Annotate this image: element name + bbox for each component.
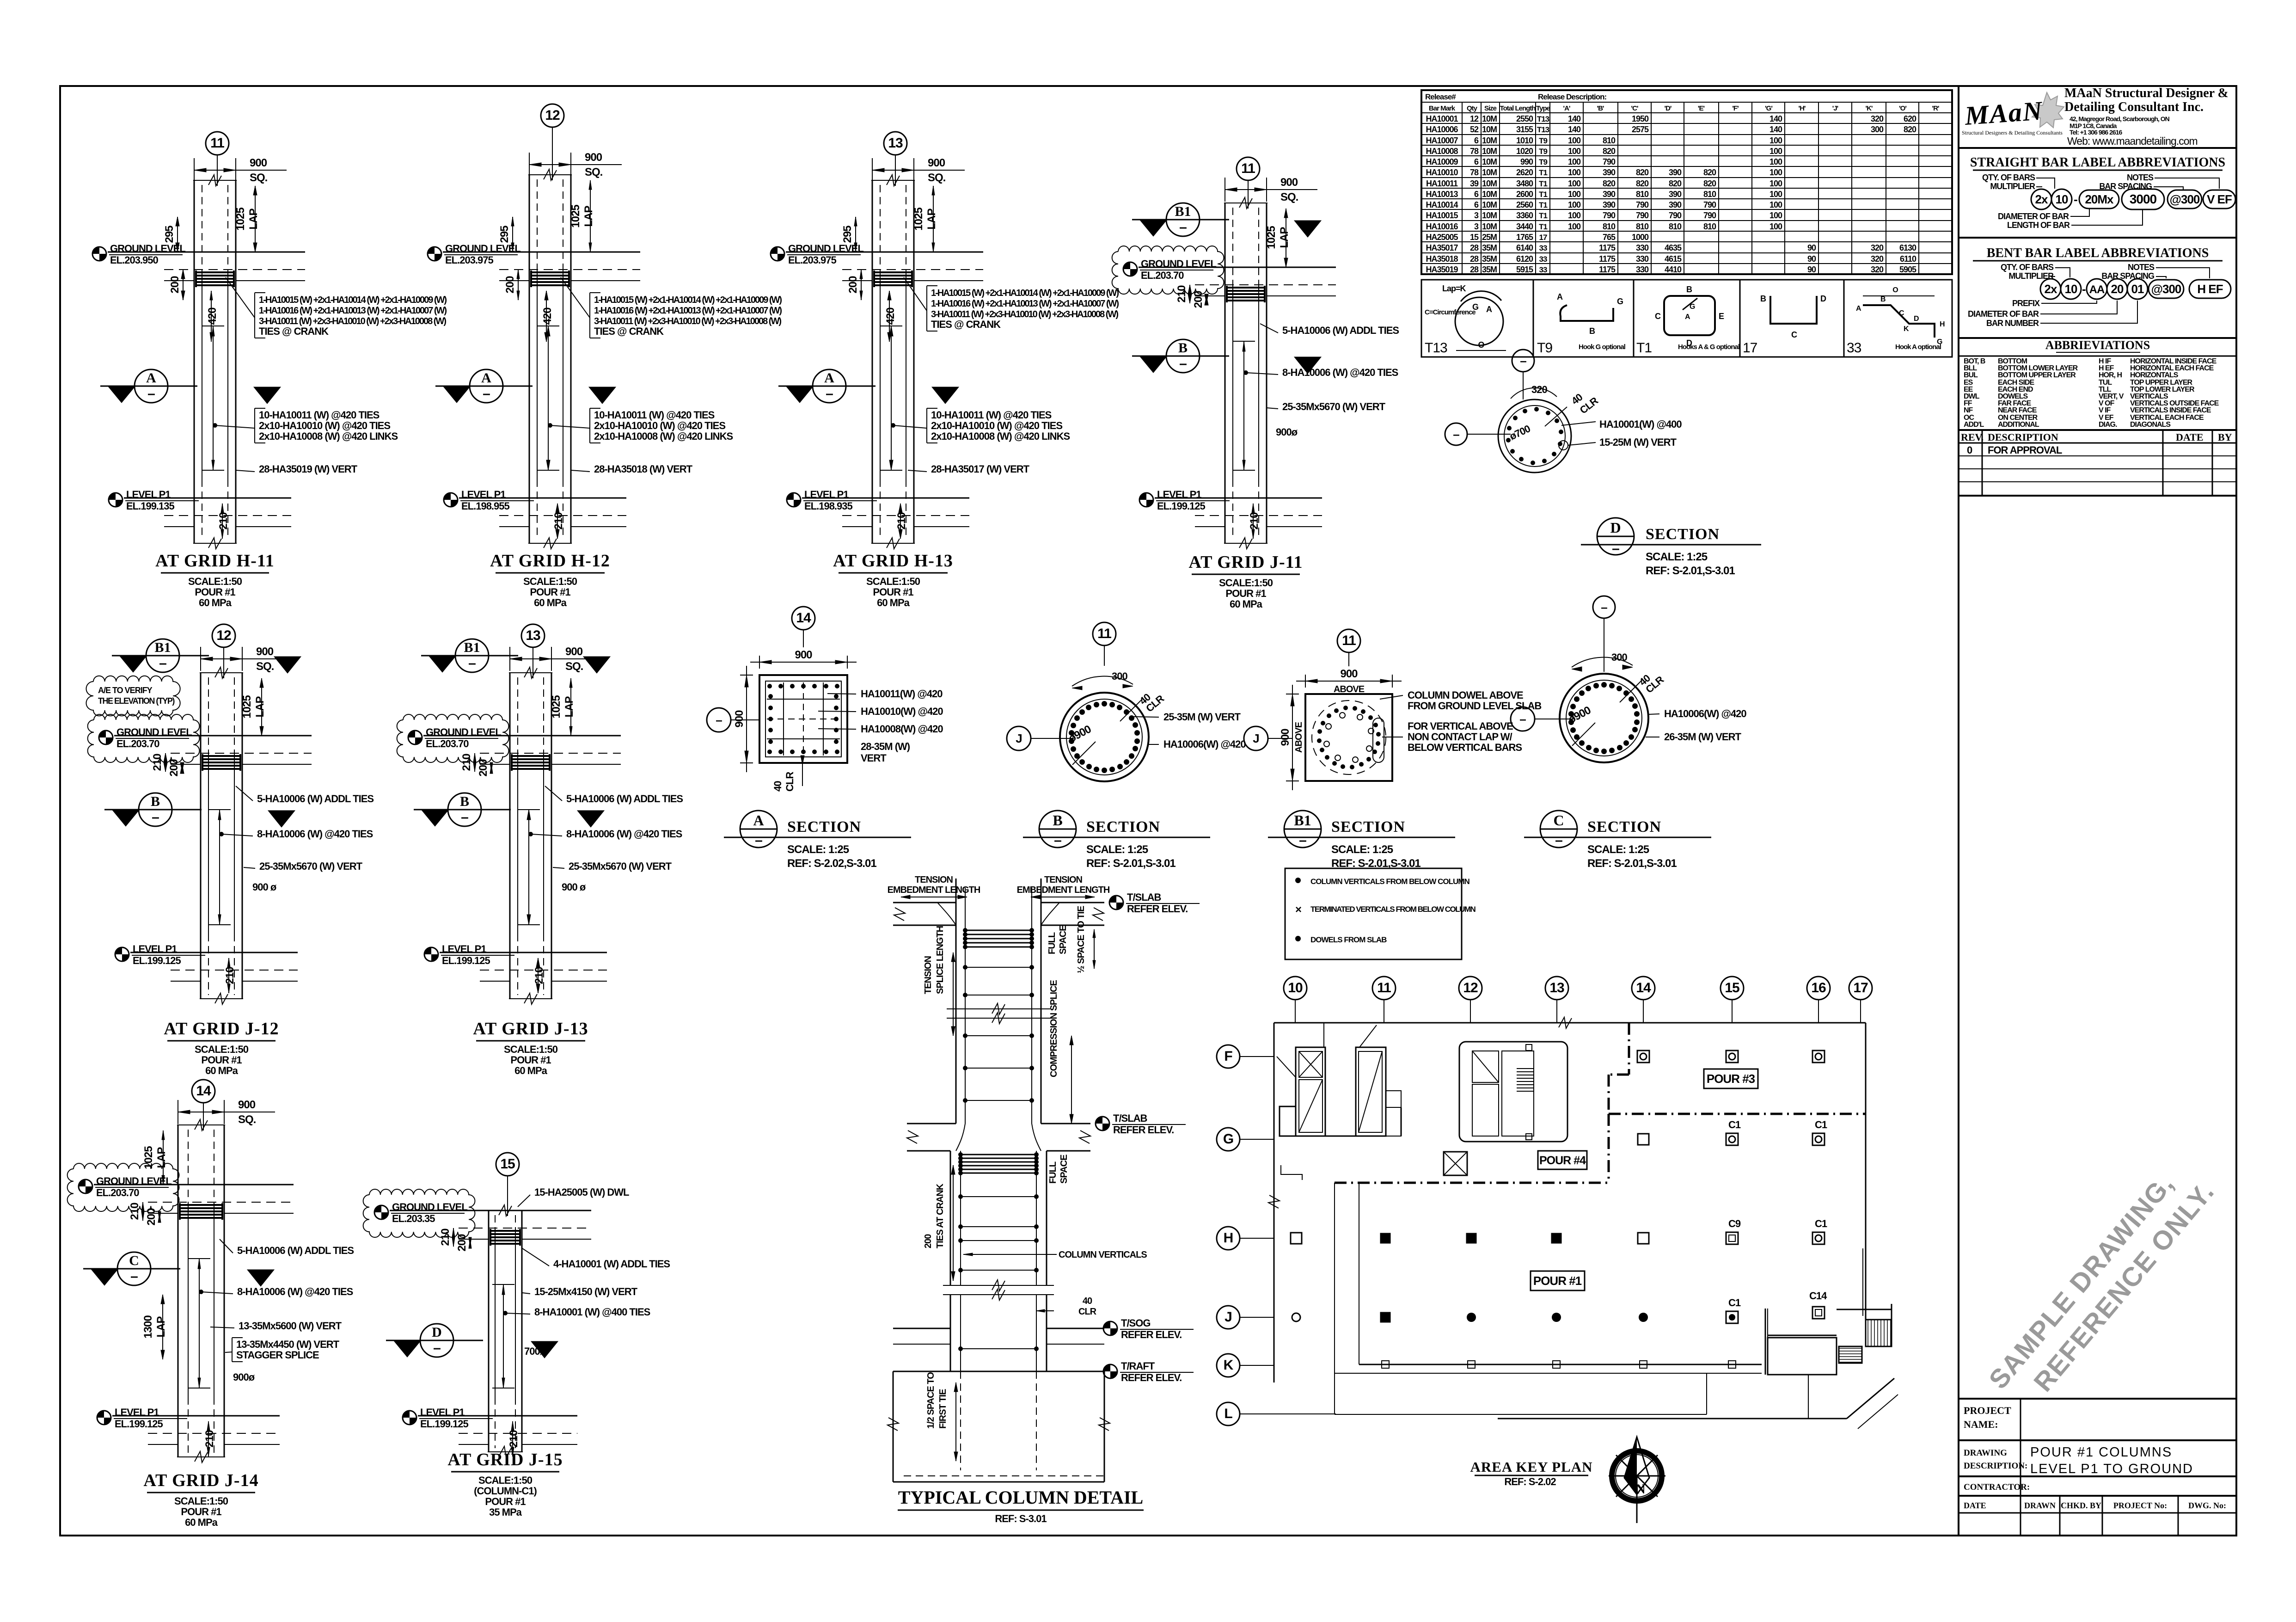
svg-text:@300: @300	[2151, 282, 2181, 296]
svg-text:L: L	[1224, 1406, 1232, 1421]
svg-text:HA10010(W) @420: HA10010(W) @420	[861, 706, 943, 717]
svg-text:DIAGONALS: DIAGONALS	[2130, 421, 2171, 429]
svg-text:J: J	[1225, 1309, 1232, 1325]
svg-text:100: 100	[1568, 222, 1581, 231]
svg-text:REFER ELEV.: REFER ELEV.	[1127, 903, 1188, 915]
svg-text:1025: 1025	[1265, 226, 1278, 249]
svg-text:100: 100	[1568, 136, 1581, 145]
svg-text:790: 790	[1703, 211, 1716, 220]
svg-text:900: 900	[238, 1099, 256, 1111]
svg-text:–: –	[147, 386, 155, 401]
svg-text:REFER ELEV.: REFER ELEV.	[1121, 1329, 1182, 1340]
svg-text:420: 420	[884, 307, 897, 325]
svg-text:HA10015: HA10015	[1426, 211, 1458, 220]
svg-text:3360: 3360	[1516, 211, 1533, 220]
svg-text:FULL: FULL	[1048, 1161, 1058, 1184]
svg-text:SECTION: SECTION	[1086, 818, 1160, 836]
svg-text:BENT BAR LABEL ABBREVIATION: BENT BAR LABEL ABBREVIATIONS	[1987, 246, 2209, 260]
svg-text:820: 820	[1636, 179, 1649, 188]
svg-text:210: 210	[129, 1203, 141, 1220]
svg-text:(COLUMN-C1): (COLUMN-C1)	[474, 1485, 537, 1497]
svg-text:28-HA35017 (W) VERT: 28-HA35017 (W) VERT	[931, 463, 1030, 475]
svg-text:15-25Mx4150 (W) VERT: 15-25Mx4150 (W) VERT	[534, 1286, 638, 1297]
svg-text:C1: C1	[1815, 1119, 1827, 1130]
svg-text:700ø: 700ø	[524, 1346, 546, 1357]
svg-text:CLR: CLR	[784, 772, 796, 792]
svg-text:200: 200	[477, 759, 490, 777]
svg-text:NF: NF	[1964, 406, 1973, 414]
svg-text:10-HA10011 (W) @420 TIES: 10-HA10011 (W) @420 TIES	[594, 409, 715, 421]
svg-text:100: 100	[1769, 147, 1782, 156]
svg-text:SQ.: SQ.	[565, 660, 583, 673]
svg-text:–: –	[1519, 712, 1526, 726]
svg-text:320: 320	[1871, 265, 1884, 274]
svg-text:100: 100	[1769, 136, 1782, 145]
svg-text:5-HA10006 (W) ADDL TIES: 5-HA10006 (W) ADDL TIES	[257, 793, 373, 805]
svg-text:'G': 'G'	[1765, 104, 1772, 112]
svg-text:28-HA35018 (W) VERT: 28-HA35018 (W) VERT	[594, 463, 693, 475]
svg-text:0: 0	[1967, 444, 1972, 456]
svg-text:10M: 10M	[1482, 125, 1497, 134]
svg-text:25-35M (W) VERT: 25-35M (W) VERT	[1163, 711, 1241, 723]
svg-text:B1: B1	[1294, 812, 1311, 829]
svg-text:390: 390	[1669, 168, 1682, 177]
svg-text:33: 33	[1539, 244, 1547, 252]
svg-text:1/2 SPACE TO: 1/2 SPACE TO	[926, 1372, 936, 1429]
svg-text:POUR #1: POUR #1	[485, 1496, 526, 1507]
svg-text:NAME:: NAME:	[1964, 1419, 1998, 1430]
svg-text:C1: C1	[1815, 1218, 1827, 1229]
svg-text:SQ.: SQ.	[1280, 191, 1298, 203]
svg-text:3-HA10011 (W) +2x3-HA10010 (: 3-HA10011 (W) +2x3-HA10010 (W) +2x3-HA10…	[594, 316, 781, 326]
svg-text:2575: 2575	[1632, 125, 1649, 134]
svg-text:TENSION: TENSION	[915, 875, 953, 885]
svg-text:AT GRID H-13: AT GRID H-13	[833, 551, 953, 571]
svg-text:10M: 10M	[1482, 114, 1497, 123]
svg-text:28-HA35019 (W) VERT: 28-HA35019 (W) VERT	[259, 463, 358, 475]
svg-text:HORIZONTALS: HORIZONTALS	[2130, 371, 2179, 379]
svg-text:'B': 'B'	[1597, 104, 1604, 112]
svg-text:820: 820	[1703, 168, 1716, 177]
svg-text:990: 990	[1520, 157, 1533, 166]
svg-text:A: A	[1557, 292, 1563, 301]
svg-text:12: 12	[1470, 114, 1479, 123]
svg-text:210: 210	[460, 754, 473, 771]
svg-text:900: 900	[1340, 668, 1358, 680]
svg-text:SCALE:1:50: SCALE:1:50	[174, 1495, 228, 1507]
svg-text:DATE: DATE	[2176, 431, 2204, 443]
svg-text:HA10008: HA10008	[1426, 147, 1458, 156]
svg-text:1950: 1950	[1632, 114, 1649, 123]
svg-text:BAR SPACING: BAR SPACING	[2101, 271, 2154, 281]
svg-text:1175: 1175	[1599, 265, 1616, 274]
svg-text:REF: S-3.01: REF: S-3.01	[995, 1513, 1047, 1524]
svg-text:3-HA10011 (W) +2x3-HA10010 (: 3-HA10011 (W) +2x3-HA10010 (W) +2x3-HA10…	[259, 316, 446, 326]
svg-text:–: –	[755, 833, 762, 848]
svg-text:D: D	[432, 1325, 442, 1340]
svg-text:–: –	[433, 1340, 441, 1356]
svg-text:2x10-HA10010 (W) @420 TIES: 2x10-HA10010 (W) @420 TIES	[931, 420, 1062, 431]
svg-text:SECTION: SECTION	[787, 818, 861, 836]
svg-text:REV.: REV.	[1961, 431, 1984, 443]
svg-text:100: 100	[1769, 157, 1782, 166]
svg-text:6110: 6110	[1900, 254, 1916, 264]
svg-text:2x10-HA10008 (W) @420 LINKS: 2x10-HA10008 (W) @420 LINKS	[931, 430, 1070, 442]
svg-text:QTY. OF BARS: QTY. OF BARS	[1982, 173, 2035, 182]
svg-text:3000: 3000	[2130, 192, 2157, 206]
svg-text:20: 20	[2111, 282, 2124, 296]
svg-text:C1: C1	[1728, 1297, 1741, 1309]
svg-text:B: B	[1178, 340, 1188, 356]
svg-text:ABBRIEVIATIONS: ABBRIEVIATIONS	[2045, 338, 2150, 352]
svg-text:NOTES: NOTES	[2127, 173, 2154, 182]
svg-text:HA10011(W) @420: HA10011(W) @420	[861, 688, 943, 700]
svg-text:2x10-HA10010 (W) @420 TIES: 2x10-HA10010 (W) @420 TIES	[594, 420, 725, 431]
svg-text:POUR #1: POUR #1	[873, 586, 913, 598]
svg-text:AT GRID H-12: AT GRID H-12	[490, 551, 610, 571]
svg-text:26-35M (W) VERT: 26-35M (W) VERT	[1664, 731, 1741, 743]
svg-text:1000: 1000	[1632, 233, 1649, 242]
svg-text:25M: 25M	[1482, 233, 1497, 242]
svg-text:HA10011: HA10011	[1426, 179, 1458, 188]
svg-text:T13: T13	[1425, 340, 1447, 356]
svg-text:POUR #1: POUR #1	[1225, 588, 1266, 599]
svg-text:Hook A optional: Hook A optional	[1895, 343, 1941, 351]
svg-text:12: 12	[1463, 980, 1478, 995]
svg-text:V EF: V EF	[2207, 192, 2232, 206]
svg-text:PROJECT: PROJECT	[1964, 1405, 2011, 1416]
svg-text:E: E	[1719, 312, 1724, 321]
svg-text:420: 420	[541, 307, 554, 325]
svg-text:A: A	[1856, 305, 1861, 313]
svg-text:5-HA10006 (W) ADDL TIES: 5-HA10006 (W) ADDL TIES	[566, 793, 683, 805]
svg-text:28: 28	[1470, 254, 1479, 264]
svg-text:FULL: FULL	[1047, 932, 1057, 954]
svg-text:MAaN Structural Designer &: MAaN Structural Designer &	[2064, 86, 2229, 100]
svg-text:2x: 2x	[2035, 192, 2048, 206]
svg-text:1765: 1765	[1516, 233, 1533, 242]
svg-text:10M: 10M	[1482, 168, 1497, 177]
svg-text:O: O	[1892, 286, 1898, 294]
svg-text:C: C	[1655, 312, 1661, 321]
svg-text:LAP: LAP	[925, 209, 938, 230]
svg-text:T9: T9	[1537, 340, 1552, 356]
svg-text:J: J	[1253, 731, 1259, 745]
svg-text:2550: 2550	[1516, 114, 1533, 123]
svg-text:B1: B1	[1175, 204, 1191, 219]
svg-text:35M: 35M	[1482, 243, 1497, 252]
svg-text:3: 3	[1474, 211, 1479, 220]
svg-text:LAP: LAP	[155, 1147, 168, 1168]
svg-text:HA10010: HA10010	[1426, 168, 1458, 177]
svg-text:N: N	[1635, 1481, 1646, 1497]
svg-text:H: H	[1224, 1230, 1233, 1246]
svg-text:210: 210	[1176, 285, 1188, 303]
svg-text:TENSION: TENSION	[1044, 875, 1082, 885]
svg-text:320: 320	[1871, 114, 1884, 123]
svg-text:10M: 10M	[1482, 190, 1497, 199]
svg-text:×: ×	[1295, 903, 1302, 916]
svg-text:–: –	[152, 810, 159, 825]
svg-text:200: 200	[1192, 291, 1205, 308]
svg-text:765: 765	[1603, 233, 1616, 242]
svg-text:8-HA10006 (W) @420 TIES: 8-HA10006 (W) @420 TIES	[237, 1286, 353, 1297]
svg-text:295: 295	[163, 226, 176, 243]
svg-text:G: G	[1472, 302, 1478, 312]
svg-text:810: 810	[1603, 136, 1616, 145]
svg-text:NEAR FACE: NEAR FACE	[1998, 406, 2037, 414]
svg-text:210: 210	[552, 512, 565, 530]
svg-text:200: 200	[923, 1234, 933, 1248]
svg-text:100: 100	[1568, 200, 1581, 209]
svg-text:BUL: BUL	[1964, 371, 1978, 379]
svg-text:SECTION: SECTION	[1587, 818, 1661, 836]
svg-text:DRAWING: DRAWING	[1964, 1448, 2007, 1458]
svg-text:A: A	[146, 370, 156, 386]
svg-text:REF: S-2.01,S-3.01: REF: S-2.01,S-3.01	[1646, 565, 1735, 577]
svg-text:295: 295	[498, 226, 511, 243]
svg-text:2x10-HA10008 (W) @420 LINKS: 2x10-HA10008 (W) @420 LINKS	[594, 430, 733, 442]
svg-text:140: 140	[1769, 125, 1782, 134]
svg-text:HA10006(W) @420: HA10006(W) @420	[1664, 708, 1746, 719]
svg-text:15-HA25005 (W) DWL: 15-HA25005 (W) DWL	[534, 1186, 629, 1198]
svg-text:810: 810	[1703, 222, 1716, 231]
svg-text:4635: 4635	[1665, 243, 1682, 252]
svg-text:140: 140	[1568, 125, 1581, 134]
svg-text:'A': 'A'	[1563, 104, 1570, 112]
svg-text:20Mx: 20Mx	[2085, 192, 2114, 206]
svg-text:T1: T1	[1539, 222, 1547, 231]
svg-text:4-HA10001 (W) ADDL TIES: 4-HA10001 (W) ADDL TIES	[553, 1258, 670, 1270]
svg-text:1025: 1025	[569, 205, 582, 228]
svg-text:42, Magregor Road, Scarborough: 42, Magregor Road, Scarborough, ON	[2069, 115, 2170, 123]
svg-text:SPLICE LENGTH: SPLICE LENGTH	[935, 926, 945, 994]
svg-text:28: 28	[1470, 265, 1479, 274]
svg-text:HA35018: HA35018	[1426, 254, 1458, 264]
svg-text:T/RAFT: T/RAFT	[1121, 1360, 1155, 1372]
svg-text:EL.203.975: EL.203.975	[788, 254, 837, 266]
svg-text:820: 820	[1636, 168, 1649, 177]
svg-text:A: A	[1486, 305, 1492, 314]
svg-text:3440: 3440	[1516, 222, 1533, 231]
svg-text:25-35Mx5670 (W) VERT: 25-35Mx5670 (W) VERT	[1282, 401, 1386, 412]
svg-text:V IF: V IF	[2099, 406, 2111, 414]
svg-text:Size: Size	[1484, 104, 1497, 112]
svg-text:'F': 'F'	[1732, 104, 1739, 112]
svg-text:2620: 2620	[1516, 168, 1533, 177]
svg-text:200: 200	[847, 276, 859, 294]
svg-text:100: 100	[1769, 222, 1782, 231]
svg-text:½ SPACE TO TIE: ½ SPACE TO TIE	[1076, 906, 1086, 973]
svg-text:4615: 4615	[1665, 254, 1682, 264]
svg-text:LAP: LAP	[582, 206, 595, 227]
svg-text:210: 210	[895, 512, 908, 530]
svg-text:ADD'L: ADD'L	[1964, 421, 1984, 429]
svg-text:25-35Mx5670 (W) VERT: 25-35Mx5670 (W) VERT	[259, 860, 363, 872]
svg-text:Web: www.maandetailing.com: Web: www.maandetailing.com	[2067, 135, 2198, 147]
svg-text:60 MPa: 60 MPa	[205, 1065, 239, 1076]
svg-text:AT GRID H-11: AT GRID H-11	[155, 551, 275, 571]
svg-text:100: 100	[1769, 200, 1782, 209]
svg-text:820: 820	[1904, 125, 1916, 134]
svg-text:100: 100	[1769, 190, 1782, 199]
svg-text:5915: 5915	[1516, 265, 1533, 274]
svg-text:3480: 3480	[1516, 179, 1533, 188]
svg-text:1025: 1025	[142, 1146, 155, 1169]
svg-text:–: –	[1555, 833, 1562, 848]
svg-text:52: 52	[1470, 125, 1479, 134]
svg-text:B: B	[1589, 326, 1595, 336]
svg-text:TIES @ CRANK: TIES @ CRANK	[931, 319, 1001, 330]
svg-text:DOWELS FROM SLAB: DOWELS FROM SLAB	[1310, 935, 1387, 944]
svg-text:AT GRID J-11: AT GRID J-11	[1188, 553, 1303, 572]
svg-text:T1: T1	[1539, 211, 1547, 220]
svg-text:100: 100	[1769, 211, 1782, 220]
svg-text:REF: S-2.01,S-3.01: REF: S-2.01,S-3.01	[1587, 857, 1677, 870]
svg-text:COMPRESSION SPLICE: COMPRESSION SPLICE	[1049, 980, 1059, 1077]
svg-text:SQ.: SQ.	[238, 1113, 256, 1126]
svg-text:T13: T13	[1537, 115, 1549, 123]
svg-text:1-HA10016 (W) +2x1-HA10013 (: 1-HA10016 (W) +2x1-HA10013 (W) +2x1-HA10…	[931, 299, 1119, 309]
svg-text:C: C	[129, 1253, 139, 1268]
svg-text:820: 820	[1603, 179, 1616, 188]
svg-text:'K': 'K'	[1866, 104, 1873, 112]
svg-text:D: D	[1610, 519, 1621, 536]
svg-text:VERT: VERT	[861, 752, 887, 764]
svg-text:H: H	[1940, 320, 1945, 328]
svg-text:A: A	[1685, 313, 1690, 321]
svg-text:SCALE:1:50: SCALE:1:50	[478, 1475, 533, 1486]
svg-text:6: 6	[1474, 157, 1479, 166]
svg-text:SECTION: SECTION	[1331, 818, 1405, 836]
svg-text:SCALE: 1:25: SCALE: 1:25	[1086, 843, 1148, 856]
svg-text:SCALE:1:50: SCALE:1:50	[866, 576, 920, 587]
svg-text:'J': 'J'	[1832, 104, 1838, 112]
svg-text:EL.203.70: EL.203.70	[1141, 270, 1184, 281]
svg-text:–: –	[1612, 541, 1619, 556]
svg-text:12: 12	[545, 108, 560, 123]
svg-text:NON CONTACT LAP W/: NON CONTACT LAP W/	[1408, 731, 1512, 743]
svg-text:@300: @300	[2170, 192, 2200, 206]
svg-text:LENGTH OF BAR: LENGTH OF BAR	[2007, 221, 2070, 230]
svg-text:TIES @ CRANK: TIES @ CRANK	[594, 326, 664, 337]
svg-text:10M: 10M	[1482, 157, 1497, 166]
svg-text:REFER ELEV.: REFER ELEV.	[1113, 1124, 1174, 1136]
svg-text:–: –	[159, 656, 166, 671]
svg-text:T1: T1	[1539, 190, 1547, 199]
svg-text:ADDITIONAL: ADDITIONAL	[1998, 421, 2039, 429]
svg-text:820: 820	[1603, 147, 1616, 156]
svg-text:Bar Mark: Bar Mark	[1429, 104, 1456, 112]
svg-text:B: B	[1880, 295, 1886, 303]
svg-text:100: 100	[1568, 179, 1581, 188]
svg-text:Release#: Release#	[1425, 92, 1456, 101]
svg-text:C9: C9	[1728, 1218, 1741, 1229]
svg-text:100: 100	[1568, 190, 1581, 199]
svg-text:K: K	[1224, 1358, 1234, 1373]
svg-text:T1: T1	[1636, 340, 1652, 356]
svg-text:AT GRID J-14: AT GRID J-14	[143, 1471, 258, 1490]
svg-text:200: 200	[456, 1234, 468, 1252]
svg-text:10M: 10M	[1482, 200, 1497, 209]
svg-text:SCALE: 1:25: SCALE: 1:25	[1331, 843, 1393, 856]
svg-text:390: 390	[1603, 190, 1616, 199]
svg-text:33: 33	[1539, 255, 1547, 264]
svg-text:Release Description:: Release Description:	[1538, 92, 1607, 101]
svg-text:TENSION: TENSION	[923, 956, 933, 994]
svg-text:LAP: LAP	[563, 696, 576, 718]
svg-text:T9: T9	[1539, 136, 1547, 145]
svg-text:1025: 1025	[234, 208, 247, 231]
svg-text:SCALE:1:50: SCALE:1:50	[188, 576, 242, 587]
svg-text:O: O	[1478, 340, 1484, 350]
svg-text:SQ.: SQ.	[585, 166, 603, 178]
svg-text:1-HA10016 (W) +2x1-HA10013 (: 1-HA10016 (W) +2x1-HA10013 (W) +2x1-HA10…	[594, 306, 782, 316]
svg-text:AT GRID J-15: AT GRID J-15	[447, 1450, 563, 1469]
svg-text:HA10016: HA10016	[1426, 222, 1458, 231]
svg-text:–: –	[1179, 220, 1187, 235]
svg-text:900: 900	[733, 710, 746, 728]
svg-text:17: 17	[1539, 233, 1547, 242]
svg-text:330: 330	[1636, 254, 1649, 264]
svg-text:A: A	[824, 370, 834, 386]
svg-text:330: 330	[1636, 265, 1649, 274]
svg-text:'D': 'D'	[1665, 104, 1671, 112]
svg-text:3155: 3155	[1516, 125, 1533, 134]
svg-text:–: –	[1299, 833, 1306, 848]
svg-text:17: 17	[1743, 340, 1757, 356]
svg-text:EL.203.70: EL.203.70	[96, 1187, 139, 1198]
svg-text:210: 210	[217, 512, 230, 530]
svg-text:100: 100	[1568, 147, 1581, 156]
svg-text:THE ELEVATION (TYP): THE ELEVATION (TYP)	[98, 696, 175, 706]
svg-text:B: B	[1053, 812, 1062, 829]
svg-text:100: 100	[1568, 211, 1581, 220]
svg-text:Hooks A & G optional: Hooks A & G optional	[1678, 343, 1740, 351]
svg-text:G: G	[1690, 303, 1695, 311]
svg-text:'O': 'O'	[1899, 104, 1906, 112]
svg-text:BOTTOM UPPER LAYER: BOTTOM UPPER LAYER	[1998, 371, 2076, 379]
svg-text:EL.198.955: EL.198.955	[461, 500, 510, 512]
svg-text:10M: 10M	[1482, 211, 1497, 220]
svg-text:1025: 1025	[241, 695, 253, 719]
svg-text:SCALE:1:50: SCALE:1:50	[523, 576, 577, 587]
svg-text:EL.203.35: EL.203.35	[392, 1213, 435, 1224]
svg-text:BAR NUMBER: BAR NUMBER	[1986, 319, 2039, 328]
svg-text:BAR SPACING: BAR SPACING	[2099, 182, 2152, 191]
svg-text:900 ø: 900 ø	[252, 881, 277, 893]
svg-text:ABOVE: ABOVE	[1294, 722, 1304, 753]
svg-text:DATE: DATE	[1964, 1501, 1986, 1510]
svg-text:HA10001: HA10001	[1426, 114, 1458, 123]
svg-text:10-HA10011 (W) @420 TIES: 10-HA10011 (W) @420 TIES	[259, 409, 380, 421]
svg-text:35M: 35M	[1482, 254, 1497, 264]
svg-text:2560: 2560	[1516, 200, 1533, 209]
svg-text:AA: AA	[2089, 283, 2105, 296]
svg-text:210: 210	[508, 1430, 520, 1448]
svg-text:DRAWN: DRAWN	[2024, 1501, 2056, 1510]
svg-text:790: 790	[1636, 211, 1649, 220]
svg-text:C=Circumference: C=Circumference	[1425, 308, 1476, 316]
svg-text:T1: T1	[1539, 179, 1547, 188]
svg-text:REF: S-2.01,S-3.01: REF: S-2.01,S-3.01	[1086, 857, 1176, 870]
svg-text:90: 90	[1807, 265, 1816, 274]
svg-text:J: J	[1016, 731, 1022, 745]
svg-text:1010: 1010	[1516, 136, 1533, 145]
svg-text:HOR, H: HOR, H	[2099, 371, 2122, 379]
svg-text:POUR #1: POUR #1	[201, 1054, 242, 1066]
svg-text:390: 390	[1603, 168, 1616, 177]
